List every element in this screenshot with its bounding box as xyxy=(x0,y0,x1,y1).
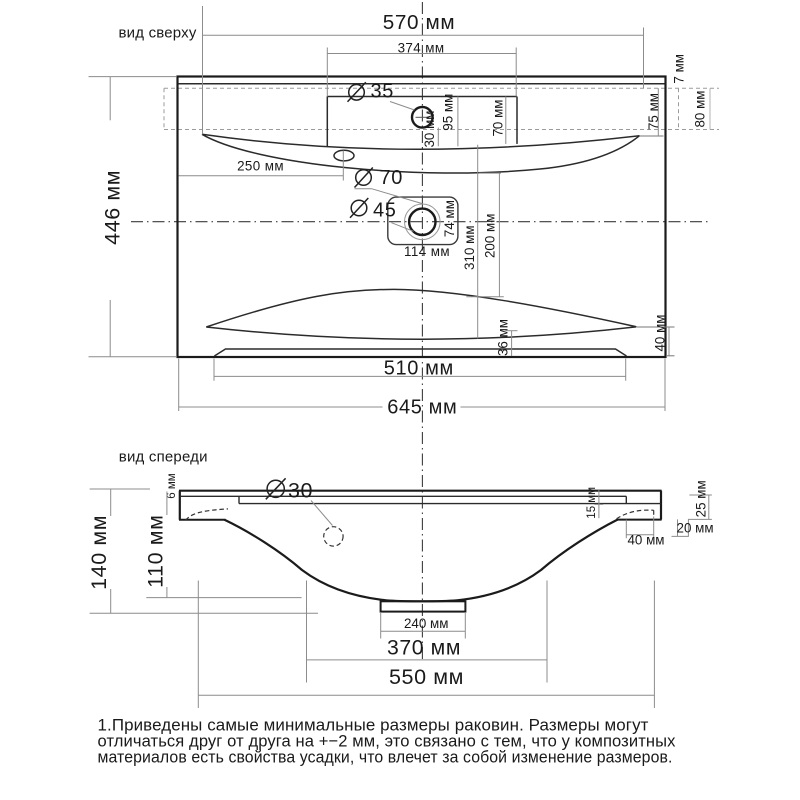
svg-text:80 мм: 80 мм xyxy=(693,90,708,127)
svg-text:310 мм: 310 мм xyxy=(462,225,477,269)
svg-text:20 мм: 20 мм xyxy=(677,521,714,536)
svg-text:70: 70 xyxy=(380,167,403,189)
svg-text:15 мм: 15 мм xyxy=(586,487,598,519)
svg-text:70 мм: 70 мм xyxy=(491,99,506,136)
svg-text:370 мм: 370 мм xyxy=(387,636,461,660)
svg-text:40 мм: 40 мм xyxy=(653,314,668,351)
svg-text:35: 35 xyxy=(371,80,394,102)
svg-text:140 мм: 140 мм xyxy=(87,515,111,590)
svg-text:95 мм: 95 мм xyxy=(441,94,456,131)
svg-text:25 мм: 25 мм xyxy=(694,480,709,517)
svg-text:446 мм: 446 мм xyxy=(101,170,125,245)
svg-text:645 мм: 645 мм xyxy=(387,397,457,419)
svg-text:45: 45 xyxy=(373,200,396,222)
svg-text:250 мм: 250 мм xyxy=(237,159,284,174)
svg-text:510 мм: 510 мм xyxy=(384,357,454,379)
svg-text:36 мм: 36 мм xyxy=(496,319,511,356)
svg-text:114 мм: 114 мм xyxy=(404,244,450,259)
svg-text:74 мм: 74 мм xyxy=(442,200,457,237)
svg-text:110 мм: 110 мм xyxy=(144,514,168,587)
svg-text:материалов есть свойства усадк: материалов есть свойства усадки, что вле… xyxy=(98,748,673,767)
svg-text:75 мм: 75 мм xyxy=(646,93,661,130)
svg-text:374 мм: 374 мм xyxy=(398,40,445,55)
svg-text:30: 30 xyxy=(288,478,313,502)
svg-text:550 мм: 550 мм xyxy=(389,665,464,689)
svg-text:7 мм: 7 мм xyxy=(672,54,687,84)
svg-text:200 мм: 200 мм xyxy=(482,214,497,258)
svg-text:570 мм: 570 мм xyxy=(383,12,456,34)
svg-text:30 мм: 30 мм xyxy=(422,110,437,147)
svg-text:вид спереди: вид спереди xyxy=(119,449,208,466)
svg-text:вид сверху: вид сверху xyxy=(119,25,197,42)
svg-text:40 мм: 40 мм xyxy=(627,533,664,548)
svg-text:6 мм: 6 мм xyxy=(166,473,178,498)
svg-text:240 мм: 240 мм xyxy=(404,616,448,631)
